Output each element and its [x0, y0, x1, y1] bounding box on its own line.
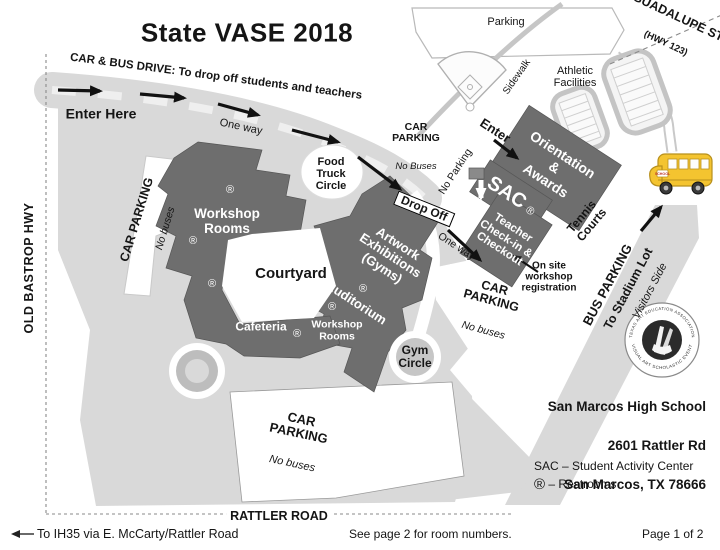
guadalupe-line — [610, 14, 720, 64]
top-parking-lot — [412, 8, 624, 58]
restroom-symbol: ® — [226, 184, 234, 196]
restroom-symbol: ® — [189, 235, 197, 247]
taea-seal: TEXAS ART EDUCATION ASSOCIATION VISUAL A… — [625, 303, 699, 377]
roundabout — [169, 343, 225, 399]
food-truck-circle-area — [301, 145, 363, 199]
gym-circle-shape — [389, 331, 441, 383]
restroom-symbol: ® — [359, 283, 367, 295]
athletic-court-large — [599, 46, 675, 137]
school-bus-icon: SCHOOL — [650, 154, 712, 194]
courtyard-area — [222, 228, 336, 322]
campus-map: SCHOOL TEXAS ART EDUCATION ASSOCIATION V… — [0, 0, 720, 550]
bus-sign-text: SCHOOL — [655, 172, 671, 176]
restroom-symbol: ® — [208, 278, 216, 290]
drive-arrow-1 — [58, 90, 100, 91]
map-canvas: SCHOOL TEXAS ART EDUCATION ASSOCIATION V… — [0, 0, 720, 550]
building-detail — [469, 168, 484, 179]
restroom-symbol: ® — [328, 301, 336, 313]
restroom-symbol: ® — [293, 328, 301, 340]
